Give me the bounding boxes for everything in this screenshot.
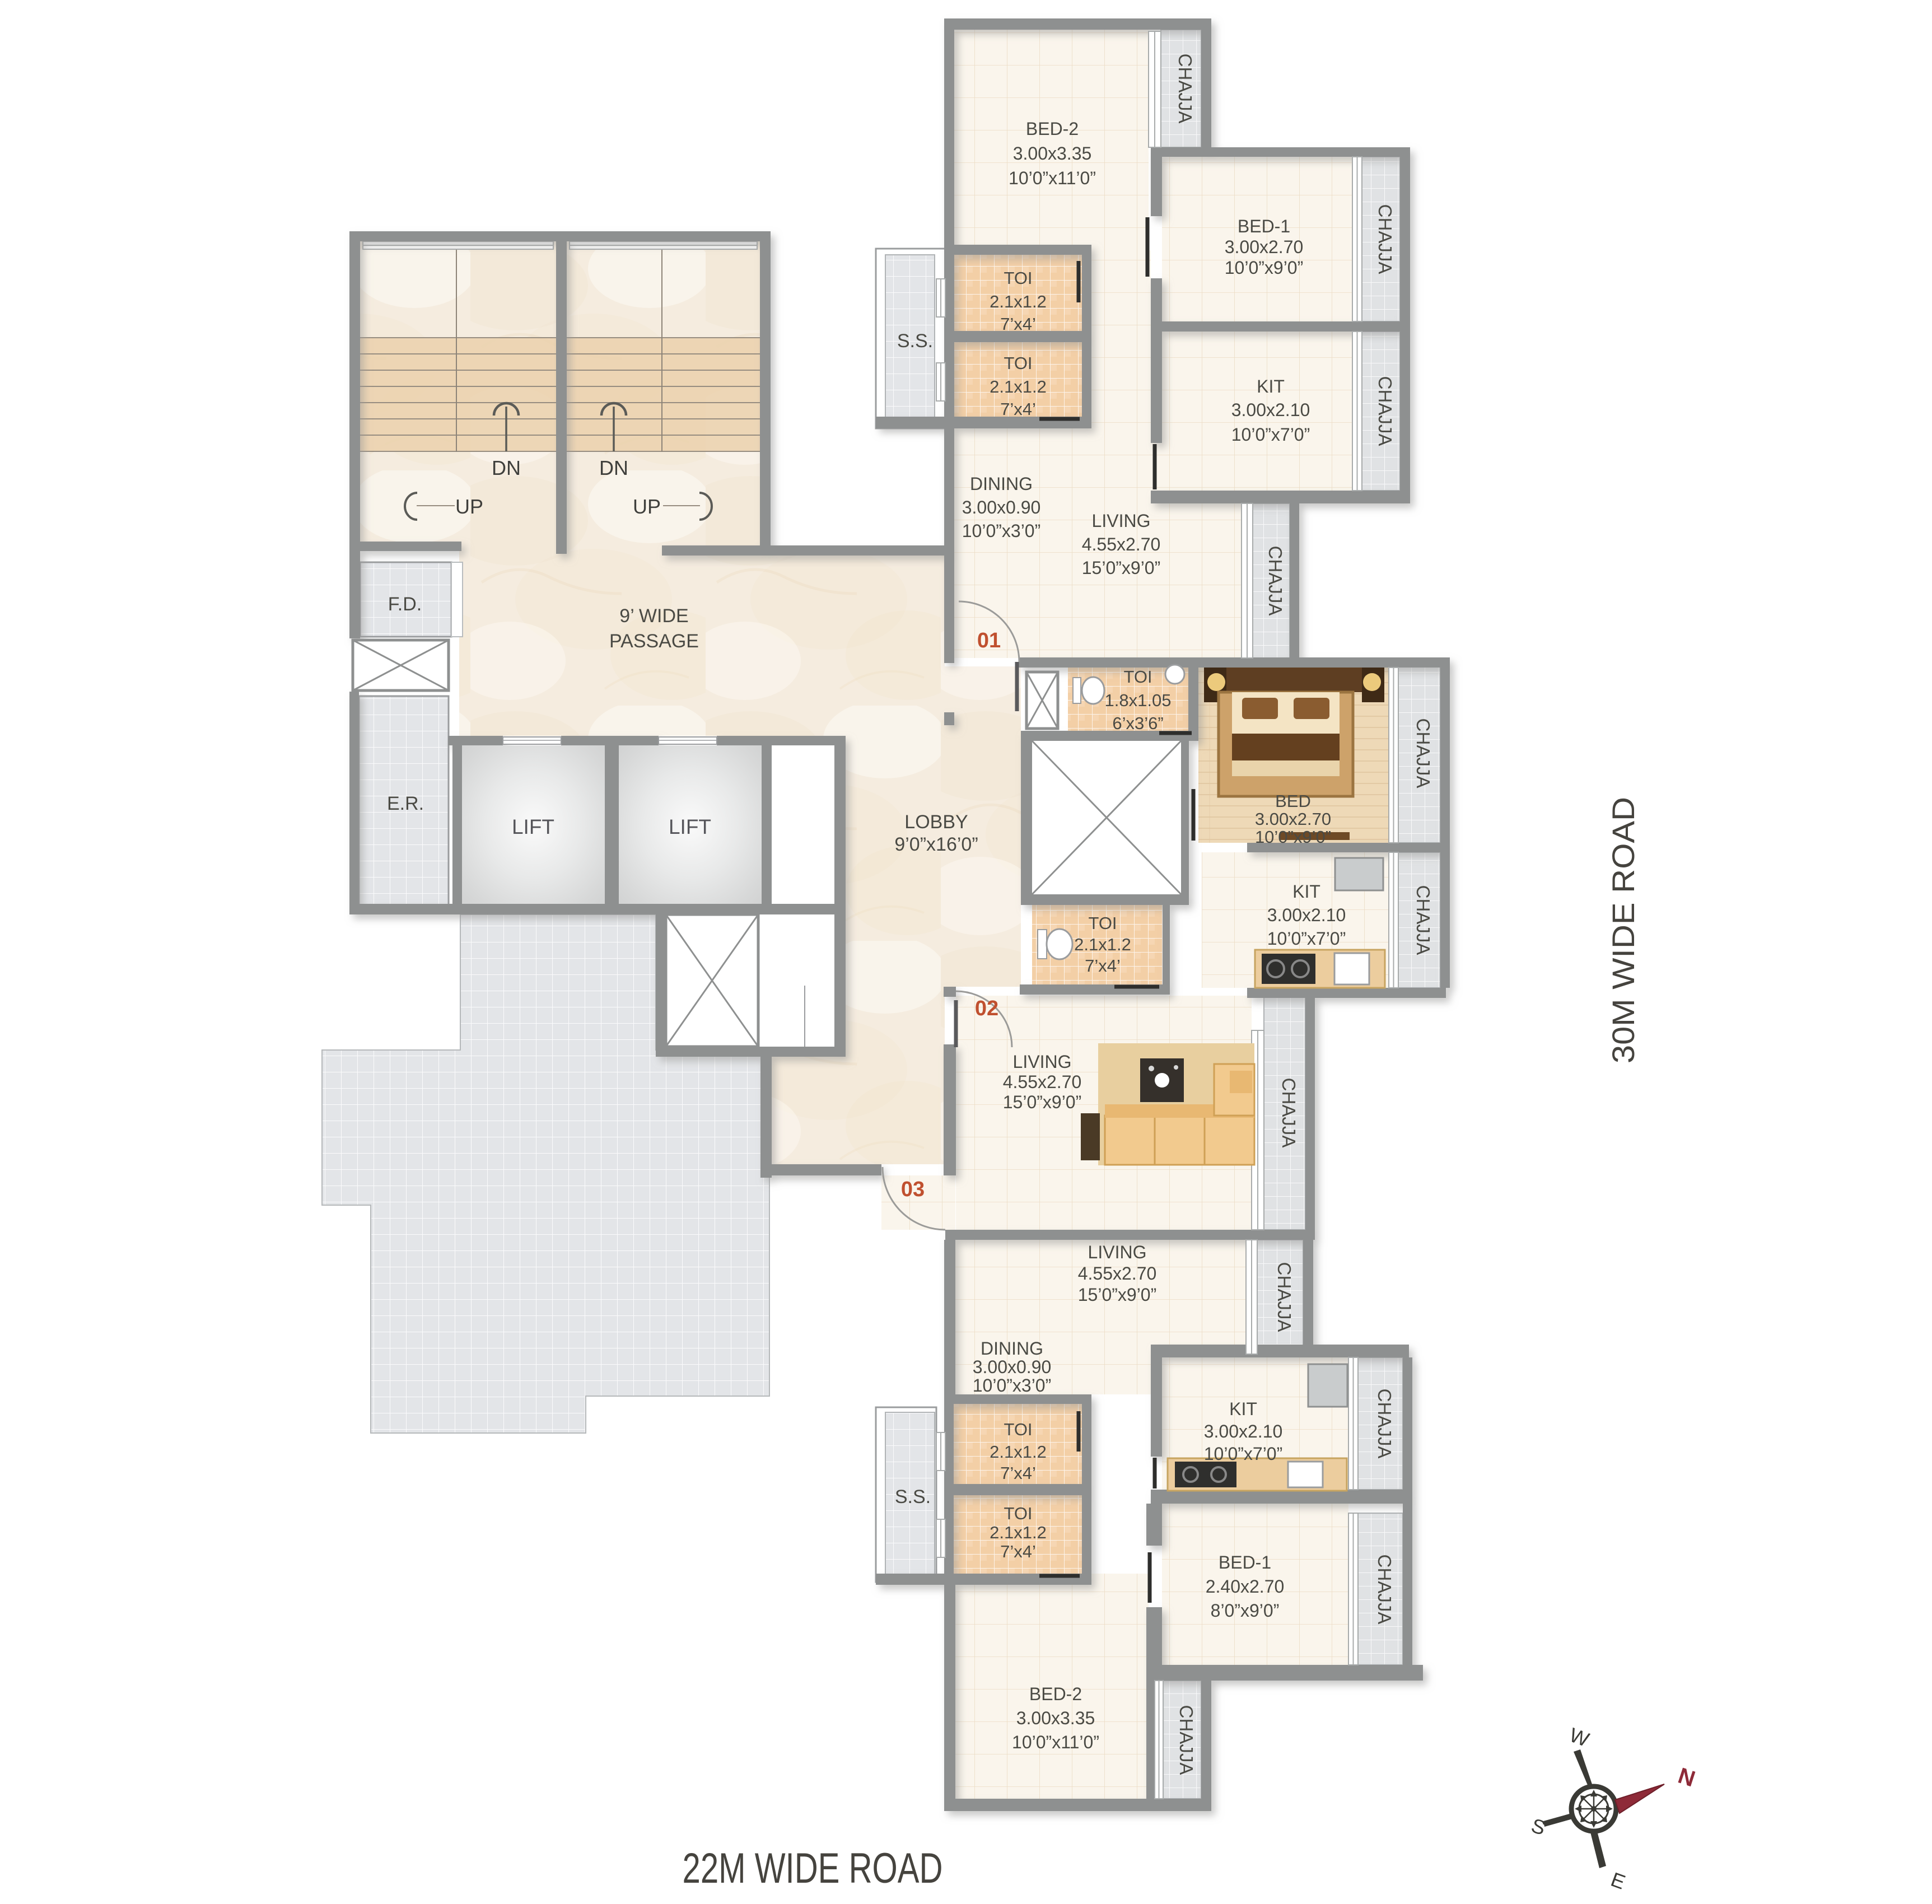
svg-text:7’x4’: 7’x4’ (1000, 314, 1036, 334)
svg-text:01: 01 (977, 629, 1001, 652)
svg-text:BED-1: BED-1 (1219, 1552, 1271, 1572)
svg-text:F.D.: F.D. (388, 594, 422, 615)
svg-text:03: 03 (901, 1178, 925, 1201)
svg-text:4.55x2.70: 4.55x2.70 (1003, 1072, 1082, 1092)
svg-text:15’0”x9’0”: 15’0”x9’0” (1078, 1285, 1157, 1305)
svg-text:2.1x1.2: 2.1x1.2 (990, 1523, 1047, 1542)
svg-text:DN: DN (599, 456, 628, 479)
svg-text:DINING: DINING (981, 1338, 1043, 1359)
svg-text:4.55x2.70: 4.55x2.70 (1078, 1263, 1157, 1284)
svg-text:10’0”x7’0”: 10’0”x7’0” (1267, 928, 1346, 949)
svg-text:TOI: TOI (1004, 1504, 1032, 1523)
svg-text:UP: UP (633, 495, 661, 518)
svg-text:CHAJJA: CHAJJA (1375, 376, 1396, 446)
svg-text:LOBBY: LOBBY (904, 811, 968, 833)
svg-text:KIT: KIT (1257, 376, 1285, 396)
svg-text:22M WIDE ROAD: 22M WIDE ROAD (683, 1845, 943, 1892)
svg-text:3.00x2.10: 3.00x2.10 (1231, 400, 1310, 420)
svg-text:15’0”x9’0”: 15’0”x9’0” (1003, 1092, 1082, 1112)
svg-text:S.S.: S.S. (895, 1486, 931, 1508)
svg-text:BED-2: BED-2 (1026, 119, 1079, 139)
svg-text:10’0”x3’0”: 10’0”x3’0” (962, 521, 1041, 541)
svg-text:CHAJJA: CHAJJA (1176, 1705, 1197, 1775)
svg-text:CHAJJA: CHAJJA (1374, 1555, 1395, 1625)
svg-text:10’0”x11’0”: 10’0”x11’0” (1012, 1732, 1099, 1752)
svg-text:3.00x0.90: 3.00x0.90 (973, 1357, 1052, 1377)
svg-text:LIVING: LIVING (1092, 511, 1151, 531)
svg-text:KIT: KIT (1229, 1399, 1257, 1419)
svg-text:3.00x2.70: 3.00x2.70 (1255, 809, 1331, 829)
svg-text:S.S.: S.S. (897, 330, 933, 352)
svg-text:PASSAGE: PASSAGE (609, 631, 699, 652)
svg-text:BED-2: BED-2 (1029, 1684, 1082, 1704)
svg-text:2.1x1.2: 2.1x1.2 (990, 377, 1047, 396)
svg-text:CHAJJA: CHAJJA (1274, 1262, 1295, 1332)
svg-text:2.40x2.70: 2.40x2.70 (1206, 1576, 1285, 1597)
svg-text:3.00x3.35: 3.00x3.35 (1016, 1708, 1095, 1728)
svg-text:3.00x2.10: 3.00x2.10 (1204, 1421, 1283, 1441)
svg-text:2.1x1.2: 2.1x1.2 (990, 292, 1047, 311)
svg-text:10’0”x3’0”: 10’0”x3’0” (973, 1375, 1052, 1396)
svg-text:30M WIDE ROAD: 30M WIDE ROAD (1606, 797, 1641, 1063)
svg-text:3.00x2.70: 3.00x2.70 (1225, 237, 1304, 257)
svg-text:1.8x1.05: 1.8x1.05 (1105, 690, 1172, 710)
svg-text:BED-1: BED-1 (1238, 216, 1290, 236)
svg-text:CHAJJA: CHAJJA (1413, 885, 1434, 955)
svg-text:10’0”x9’0”: 10’0”x9’0” (1225, 258, 1304, 278)
svg-text:LIVING: LIVING (1088, 1242, 1147, 1262)
svg-text:10’0”x9’0”: 10’0”x9’0” (1255, 827, 1331, 847)
svg-text:CHAJJA: CHAJJA (1265, 546, 1286, 616)
svg-text:CHAJJA: CHAJJA (1175, 54, 1196, 124)
svg-text:6’x3’6”: 6’x3’6” (1112, 713, 1163, 733)
svg-text:CHAJJA: CHAJJA (1278, 1078, 1299, 1148)
svg-text:TOI: TOI (1088, 913, 1117, 933)
svg-text:DN: DN (492, 456, 521, 479)
svg-text:7’x4’: 7’x4’ (1000, 1542, 1036, 1561)
svg-text:CHAJJA: CHAJJA (1375, 204, 1396, 274)
svg-text:3.00x2.10: 3.00x2.10 (1267, 905, 1346, 925)
svg-text:UP: UP (455, 495, 483, 518)
svg-text:10’0”x7’0”: 10’0”x7’0” (1231, 424, 1310, 445)
svg-text:7’x4’: 7’x4’ (1085, 956, 1121, 976)
svg-text:7’x4’: 7’x4’ (1000, 1463, 1036, 1483)
svg-text:KIT: KIT (1292, 881, 1320, 902)
svg-text:10’0”x11’0”: 10’0”x11’0” (1009, 168, 1096, 188)
svg-text:15’0”x9’0”: 15’0”x9’0” (1082, 558, 1161, 578)
svg-text:TOI: TOI (1004, 353, 1032, 373)
svg-text:2.1x1.2: 2.1x1.2 (990, 1442, 1047, 1462)
svg-text:3.00x3.35: 3.00x3.35 (1013, 143, 1092, 164)
svg-text:02: 02 (975, 997, 998, 1020)
svg-text:E.R.: E.R. (387, 793, 424, 814)
svg-text:9’ WIDE: 9’ WIDE (619, 605, 688, 627)
svg-text:CHAJJA: CHAJJA (1413, 718, 1434, 788)
svg-text:9’0”x16’0”: 9’0”x16’0” (894, 834, 978, 855)
svg-text:3.00x0.90: 3.00x0.90 (962, 497, 1041, 517)
svg-text:BED: BED (1275, 791, 1311, 811)
svg-text:LIFT: LIFT (512, 815, 554, 838)
svg-text:LIFT: LIFT (669, 815, 711, 838)
svg-text:10’0”x7’0”: 10’0”x7’0” (1204, 1444, 1283, 1464)
svg-text:TOI: TOI (1123, 667, 1152, 687)
svg-text:LIVING: LIVING (1013, 1052, 1072, 1072)
svg-text:2.1x1.2: 2.1x1.2 (1074, 935, 1131, 954)
svg-text:TOI: TOI (1004, 268, 1032, 288)
svg-text:CHAJJA: CHAJJA (1374, 1389, 1395, 1459)
svg-text:4.55x2.70: 4.55x2.70 (1082, 534, 1161, 554)
svg-text:DINING: DINING (970, 474, 1033, 494)
svg-text:8’0”x9’0”: 8’0”x9’0” (1211, 1600, 1280, 1621)
svg-text:TOI: TOI (1004, 1420, 1032, 1439)
svg-text:7’x4’: 7’x4’ (1000, 399, 1036, 419)
